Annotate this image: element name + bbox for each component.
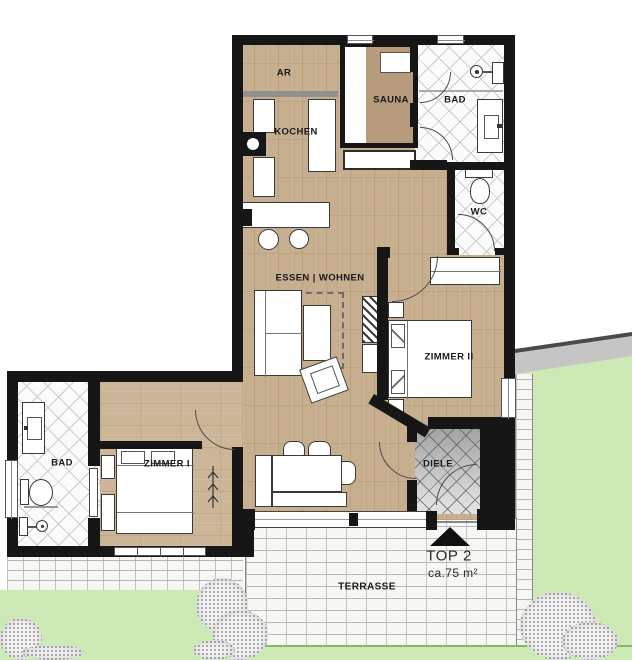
nightstand: [101, 494, 115, 531]
bar-stool: [289, 229, 309, 249]
floorplan-top2: AR KOCHEN SAUNA BAD WC ESSEN | WOHNEN ZI…: [0, 0, 632, 660]
unit-title: TOP 2: [426, 548, 472, 565]
chair: [283, 441, 305, 456]
window-right-zimmer2: [501, 378, 516, 418]
sauna-bench: [380, 52, 411, 73]
glass-line: [242, 519, 426, 520]
plant-icon: [206, 464, 220, 510]
toilet-cistern: [465, 169, 493, 178]
dining-table: [272, 455, 342, 492]
wall-wc-left: [447, 162, 455, 255]
glass-post: [349, 513, 358, 526]
sauna-step: [343, 150, 416, 170]
toilet-icon: [20, 479, 29, 505]
wall-diele-left: [407, 424, 417, 442]
vanity: [477, 99, 503, 153]
kitchen-island: [242, 202, 330, 228]
window-wing-left: [5, 460, 18, 518]
room-label-kochen: KOCHEN: [274, 127, 318, 138]
tap: [24, 426, 28, 430]
wall-bad-wc: [447, 162, 505, 170]
wall-ar-kochen: [243, 91, 338, 97]
room-label-sauna: SAUNA: [373, 95, 409, 106]
toilet-icon: [470, 178, 490, 204]
wall-badtop-left: [410, 45, 418, 72]
flue-circle: [247, 138, 259, 150]
entry-threshold: [437, 521, 477, 523]
shower-partition: [24, 506, 58, 508]
window-wing-bottom: [114, 547, 206, 556]
coffee-table: [303, 305, 331, 361]
shower-dot: [41, 525, 44, 528]
dining-bench: [255, 455, 272, 507]
wardrobe-line: [431, 271, 501, 272]
wall-wc-bottom: [495, 248, 505, 255]
window-top-sauna: [347, 35, 373, 44]
kitchen-counter: [253, 157, 275, 197]
glass-post: [242, 509, 255, 530]
sink: [27, 417, 42, 440]
window-line: [508, 379, 509, 419]
sofa-line: [265, 333, 303, 334]
nightstand: [388, 302, 404, 318]
chair: [341, 461, 356, 485]
chair: [308, 441, 331, 456]
room-label-essen-wohnen: ESSEN | WOHNEN: [275, 273, 364, 284]
room-label-wc: WC: [471, 207, 488, 218]
stove-flue-icon: [240, 132, 266, 156]
shower-valve: [19, 517, 28, 536]
wall-zimmer2-left: [377, 247, 388, 400]
pillow: [391, 324, 405, 348]
room-label-zimmer2: ZIMMER II: [425, 352, 474, 363]
window-line: [348, 40, 374, 41]
glass-front-terrace: [242, 511, 426, 528]
shrub: [562, 622, 618, 660]
armchair-cushion: [310, 365, 340, 394]
room-label-ar: AR: [277, 68, 292, 79]
window-line: [438, 40, 465, 41]
blanket-line: [117, 512, 194, 513]
shower-icon: [470, 65, 483, 78]
pillow: [121, 451, 145, 464]
sofa-line: [265, 291, 266, 377]
wardrobe: [430, 257, 500, 285]
door-leaf-bad-left: [89, 468, 98, 517]
bed-line: [407, 321, 408, 399]
wall-bad-zimmer1: [88, 518, 100, 547]
wall-badtop-bottom: [410, 160, 447, 170]
nightstand: [101, 455, 115, 479]
wall-corridor-zimmer1: [100, 441, 202, 449]
dining-bench: [272, 492, 347, 507]
window-tick: [160, 548, 161, 557]
tap: [497, 124, 502, 128]
shower-dot: [475, 70, 479, 74]
wall-diele-left: [407, 480, 417, 514]
shrub: [22, 645, 84, 660]
kitchen-counter: [253, 99, 275, 133]
window-line: [11, 461, 12, 519]
shower-icon: [36, 520, 48, 532]
window-tick: [137, 548, 138, 557]
unit-area: ca.75 m²: [428, 566, 478, 580]
shrub: [193, 640, 235, 660]
room-label-bad-left: BAD: [51, 458, 73, 469]
wing-wall-top: [7, 371, 243, 382]
pillow: [391, 370, 405, 394]
room-label-zimmer1: ZIMMER I: [144, 459, 190, 470]
window-tick: [183, 548, 184, 557]
room-label-bad-top: BAD: [444, 95, 466, 106]
entrance-marker-icon: [430, 527, 470, 546]
terrace-label: TERRASSE: [338, 582, 396, 593]
wall-wc-bottom: [447, 248, 459, 255]
bar-stool: [258, 229, 279, 250]
wall-entry-right: [477, 509, 515, 530]
wall-badtop-left: [410, 103, 418, 127]
washbasin-icon: [492, 62, 504, 84]
toilet-bowl: [29, 479, 53, 506]
vanity: [22, 402, 45, 454]
wall-stub-island: [232, 209, 252, 226]
window-top-bad: [437, 35, 464, 44]
sofa: [254, 290, 302, 376]
wall-bad-zimmer1: [88, 382, 100, 466]
room-label-diele: DIELE: [423, 459, 453, 470]
